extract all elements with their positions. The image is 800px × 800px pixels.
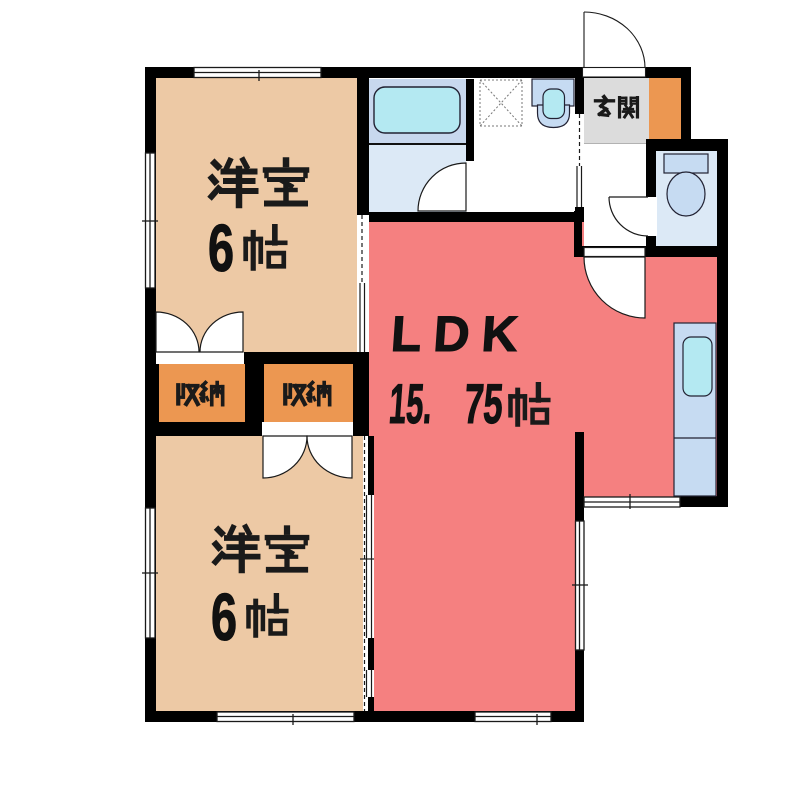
svg-text:15.: 15. <box>387 372 434 435</box>
svg-text:6: 6 <box>211 581 237 655</box>
svg-text:75: 75 <box>462 373 505 435</box>
svg-text:LDK: LDK <box>389 306 532 362</box>
svg-text:6: 6 <box>208 212 234 286</box>
